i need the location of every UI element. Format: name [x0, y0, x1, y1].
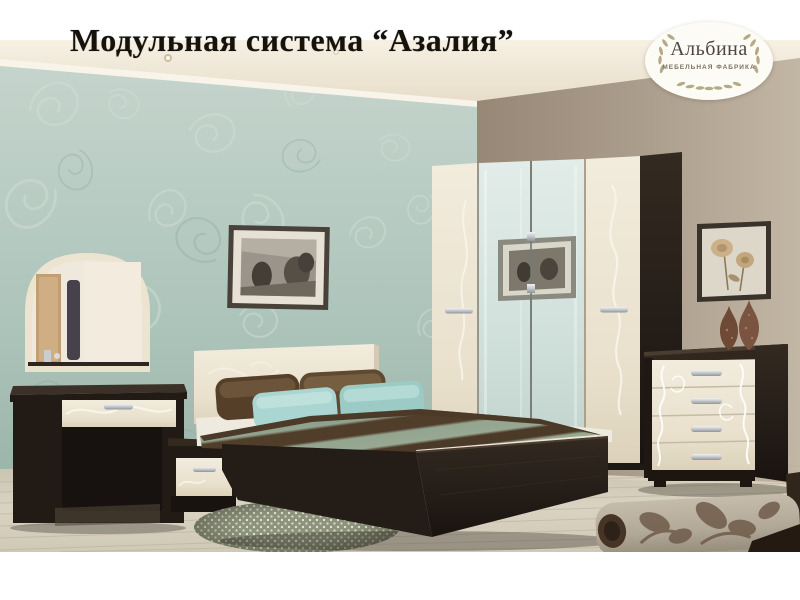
chest-of-drawers: [638, 344, 794, 497]
brand-subtitle: МЕБЕЛЬНАЯ ФАБРИКА: [645, 64, 773, 71]
page-title: Модульная система “Азалия”: [70, 22, 630, 59]
drawer-handle: [104, 404, 133, 410]
wall-picture-flowers: [697, 221, 771, 302]
brand-logo: Альбина МЕБЕЛЬНАЯ ФАБРИКА: [645, 22, 773, 100]
door-handle: [445, 308, 473, 314]
brand-name: Альбина: [645, 38, 773, 61]
advert-image: Модульная система “Азалия”: [0, 0, 800, 600]
mirror-reflection: [36, 262, 141, 364]
door-handle: [600, 307, 628, 313]
laurel-wreath-icon: [645, 22, 773, 100]
mirror-hinge: [527, 284, 535, 293]
wall-picture-landscape: [227, 225, 330, 310]
mirror-hinge: [527, 232, 535, 241]
mirror-shelf: [28, 362, 149, 366]
mirror-reflection-picture: [498, 236, 576, 301]
drawer-handle: [193, 467, 216, 472]
vanity-mirror: [25, 253, 150, 372]
bedroom-scene: [0, 40, 800, 552]
bedroom-photo: [0, 40, 800, 552]
